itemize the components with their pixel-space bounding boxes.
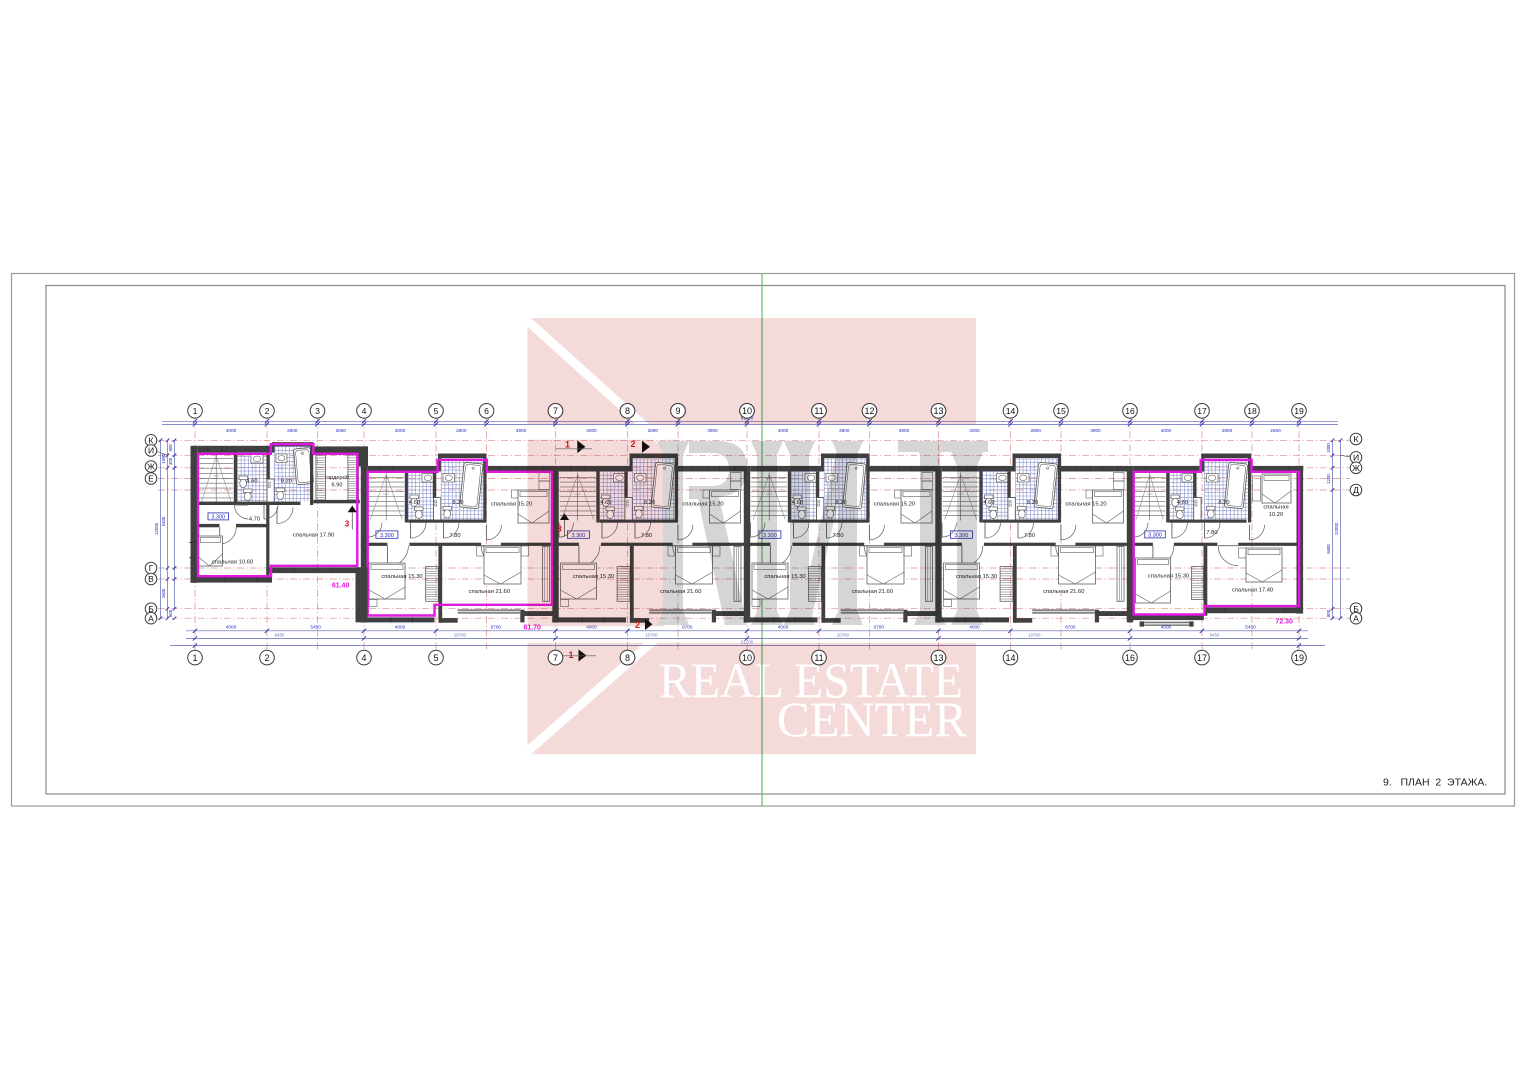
svg-text:2800: 2800 [456, 428, 467, 433]
svg-text:13: 13 [933, 653, 943, 663]
svg-text:12000: 12000 [154, 522, 159, 535]
svg-text:14: 14 [1006, 406, 1016, 416]
svg-text:16: 16 [1125, 653, 1135, 663]
svg-text:3.300: 3.300 [1148, 533, 1162, 539]
svg-text:1: 1 [193, 406, 198, 416]
svg-text:12: 12 [864, 406, 874, 416]
svg-text:9. ПЛАН 2 ЭТАЖА.: 9. ПЛАН 2 ЭТАЖА. [1383, 777, 1487, 789]
svg-text:17: 17 [1197, 653, 1207, 663]
svg-text:К: К [149, 435, 154, 445]
svg-text:4000: 4000 [226, 625, 237, 630]
svg-text:Ж: Ж [1352, 463, 1360, 473]
svg-text:8.20: 8.20 [452, 500, 463, 506]
svg-text:2: 2 [264, 653, 269, 663]
svg-text:6.90: 6.90 [332, 483, 343, 489]
svg-text:15: 15 [1056, 406, 1066, 416]
svg-text:Д: Д [1353, 485, 1359, 495]
svg-text:4: 4 [362, 406, 367, 416]
svg-text:3.300: 3.300 [380, 533, 394, 539]
svg-text:2650: 2650 [336, 428, 347, 433]
svg-text:4.60: 4.60 [246, 479, 257, 485]
svg-text:спальная 10.60: спальная 10.60 [212, 560, 253, 566]
svg-text:4.60: 4.60 [983, 500, 994, 506]
svg-text:300: 300 [168, 457, 173, 465]
svg-text:2650: 2650 [1270, 428, 1281, 433]
svg-text:2: 2 [265, 406, 270, 416]
svg-text:спальная: спальная [1263, 505, 1288, 511]
svg-text:1000: 1000 [1326, 443, 1331, 453]
svg-text:6700: 6700 [1065, 625, 1076, 630]
svg-text:8: 8 [625, 653, 630, 663]
svg-text:9: 9 [675, 406, 680, 416]
svg-text:1600: 1600 [161, 588, 166, 598]
svg-text:10: 10 [742, 653, 752, 663]
svg-text:16: 16 [1125, 406, 1135, 416]
svg-text:И: И [148, 446, 154, 456]
svg-text:4000: 4000 [226, 428, 237, 433]
svg-text:3900: 3900 [516, 428, 527, 433]
svg-text:8.20: 8.20 [1218, 500, 1229, 506]
svg-text:11: 11 [814, 406, 823, 416]
svg-text:3: 3 [345, 519, 350, 529]
svg-text:9450: 9450 [1210, 632, 1220, 637]
svg-text:Е: Е [148, 474, 154, 484]
svg-text:спальная 15.20: спальная 15.20 [1065, 502, 1106, 508]
svg-text:4000: 4000 [1161, 428, 1172, 433]
svg-text:спальная 21.60: спальная 21.60 [1043, 589, 1084, 595]
svg-text:12000: 12000 [1334, 522, 1339, 535]
svg-text:9450: 9450 [275, 632, 285, 637]
svg-text:1500: 1500 [161, 454, 166, 464]
svg-text:3: 3 [315, 406, 320, 416]
svg-text:19: 19 [1294, 653, 1304, 663]
svg-text:спальная 15.30: спальная 15.30 [381, 574, 422, 580]
svg-text:600: 600 [168, 609, 173, 617]
svg-text:4.60: 4.60 [1177, 500, 1188, 506]
svg-text:3900: 3900 [1090, 428, 1101, 433]
svg-text:10700: 10700 [454, 632, 467, 637]
svg-text:спальная 15.20: спальная 15.20 [491, 502, 532, 508]
svg-text:4000: 4000 [395, 625, 406, 630]
svg-text:5: 5 [434, 406, 439, 416]
svg-text:3.300: 3.300 [211, 515, 225, 521]
svg-text:17: 17 [1197, 406, 1207, 416]
svg-text:10.20: 10.20 [1269, 512, 1284, 518]
svg-text:А: А [148, 613, 154, 623]
svg-text:спальная 15.30: спальная 15.30 [1148, 574, 1189, 580]
svg-text:4.70: 4.70 [249, 517, 260, 523]
svg-text:спальная 17.90: спальная 17.90 [293, 533, 334, 539]
svg-text:5: 5 [433, 653, 438, 663]
svg-text:4: 4 [361, 653, 366, 663]
svg-text:61.40: 61.40 [332, 582, 350, 589]
svg-text:6700: 6700 [491, 625, 502, 630]
svg-text:5400: 5400 [161, 516, 166, 526]
svg-text:А: А [1353, 613, 1359, 623]
svg-text:8.20: 8.20 [281, 479, 292, 485]
svg-text:72.30: 72.30 [1275, 619, 1293, 626]
svg-text:К: К [1354, 434, 1359, 444]
svg-text:7: 7 [553, 406, 558, 416]
svg-text:800: 800 [1326, 609, 1331, 617]
svg-text:18: 18 [1247, 406, 1257, 416]
svg-text:13: 13 [933, 406, 943, 416]
svg-text:4000: 4000 [395, 428, 406, 433]
svg-text:Ж: Ж [147, 462, 155, 472]
svg-text:5450: 5450 [1245, 625, 1256, 630]
svg-text:8: 8 [625, 406, 630, 416]
svg-text:10: 10 [742, 406, 752, 416]
svg-text:4.60: 4.60 [409, 500, 420, 506]
svg-text:600: 600 [168, 444, 173, 452]
svg-text:7: 7 [553, 653, 558, 663]
svg-text:19: 19 [1294, 406, 1304, 416]
svg-text:14: 14 [1005, 653, 1015, 663]
svg-text:И: И [1353, 453, 1359, 463]
svg-text:1: 1 [192, 653, 197, 663]
svg-text:2800: 2800 [1031, 428, 1042, 433]
svg-text:В: В [148, 574, 154, 584]
svg-text:8.20: 8.20 [1027, 500, 1038, 506]
svg-text:6600: 6600 [1326, 544, 1331, 554]
svg-text:10700: 10700 [1028, 632, 1041, 637]
svg-text:11: 11 [814, 653, 823, 663]
svg-text:спальная 21.60: спальная 21.60 [469, 589, 510, 595]
svg-text:1200: 1200 [1326, 474, 1331, 484]
svg-text:спальная 17.40: спальная 17.40 [1232, 588, 1273, 594]
svg-text:гардероб: гардероб [325, 475, 349, 481]
svg-text:2800: 2800 [1222, 428, 1233, 433]
svg-text:CENTER: CENTER [777, 692, 967, 747]
svg-text:Г: Г [149, 563, 154, 573]
svg-text:5450: 5450 [310, 625, 321, 630]
svg-text:2600: 2600 [287, 428, 298, 433]
svg-text:6: 6 [484, 406, 489, 416]
